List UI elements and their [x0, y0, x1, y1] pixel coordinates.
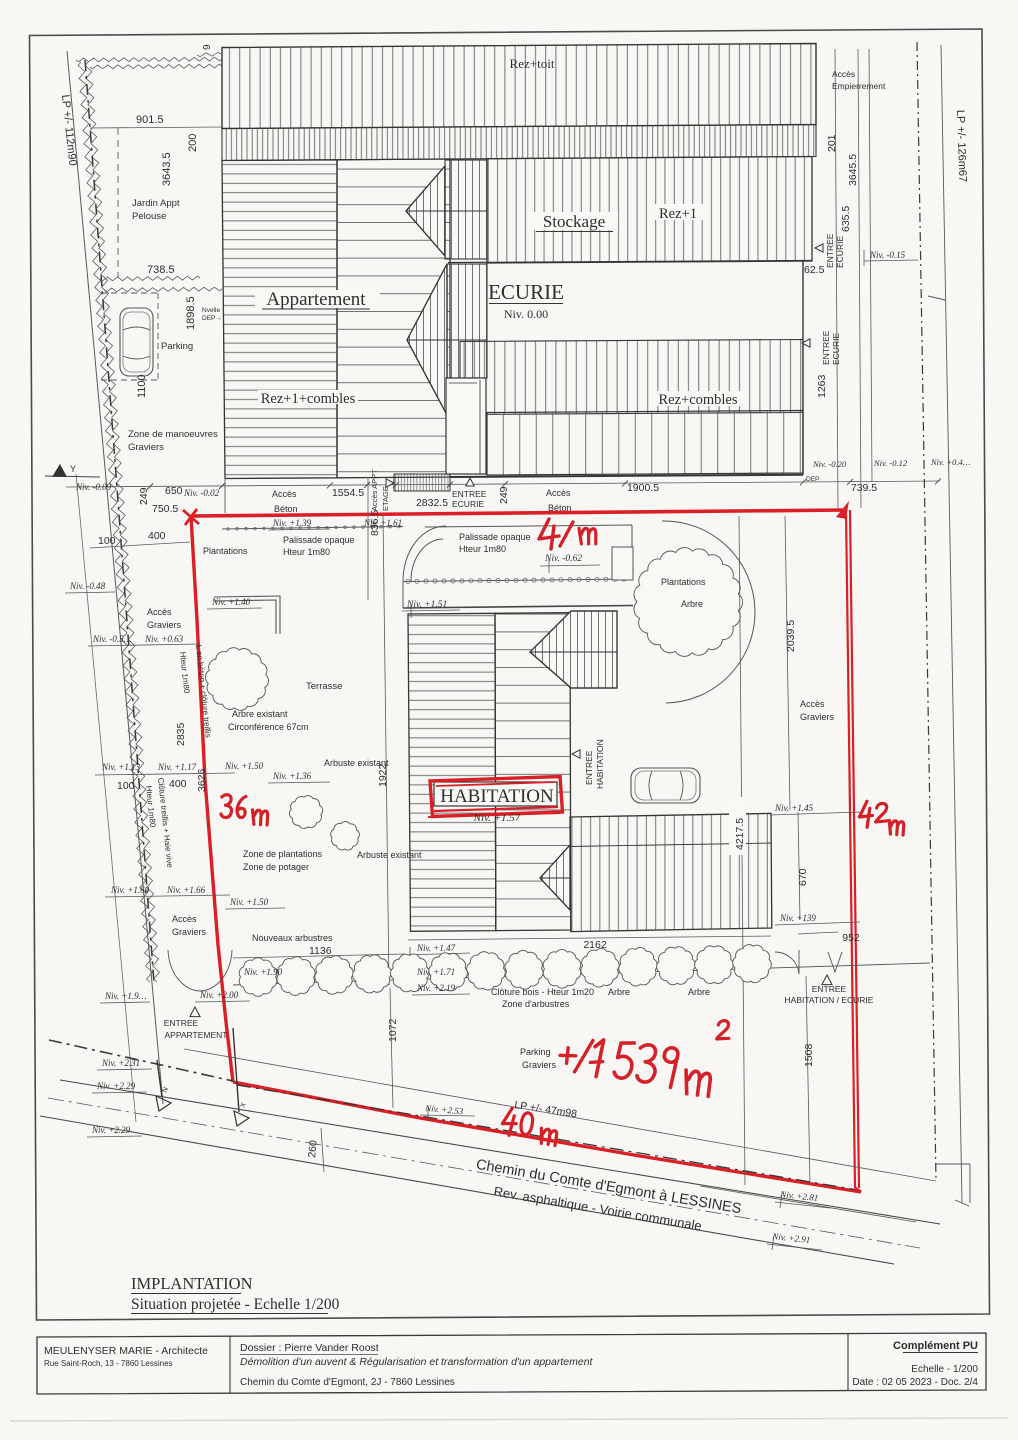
svg-text:DEP: DEP — [806, 476, 819, 483]
svg-text:Niv. +1.51: Niv. +1.51 — [406, 600, 447, 610]
svg-text:Stockage: Stockage — [543, 212, 605, 231]
svg-text:LP +/- 126m67: LP +/- 126m67 — [954, 110, 969, 183]
svg-text:APPARTEMENT: APPARTEMENT — [165, 1030, 228, 1040]
svg-text:3645.5: 3645.5 — [847, 154, 859, 186]
svg-text:Niv. +1.39: Niv. +1.39 — [272, 518, 312, 528]
svg-text:9: 9 — [202, 44, 213, 50]
svg-text:62.5: 62.5 — [804, 264, 825, 276]
svg-text:1263: 1263 — [816, 374, 828, 398]
svg-text:Niv. -0.48: Niv. -0.48 — [69, 581, 106, 591]
svg-text:Nvelle: Nvelle — [202, 307, 220, 314]
svg-text:Niv. -0.12: Niv. -0.12 — [873, 458, 908, 468]
svg-text:ENTREE: ENTREE — [825, 233, 835, 268]
svg-text:Niv. -0.20: Niv. -0.20 — [812, 459, 847, 469]
svg-text:Niv. -0.5…: Niv. -0.5… — [92, 634, 132, 644]
svg-text:Accès: Accès — [800, 699, 825, 709]
svg-text:Jardin Appt: Jardin Appt — [132, 198, 180, 209]
svg-text:Niv. 0.00: Niv. 0.00 — [504, 307, 548, 321]
svg-text:Zone d'arbustres: Zone d'arbustres — [502, 999, 570, 1009]
svg-text:Y: Y — [70, 464, 76, 474]
svg-text:Arbre existant: Arbre existant — [232, 709, 288, 719]
svg-text:260: 260 — [306, 1139, 320, 1158]
svg-text:HABITATION: HABITATION — [595, 739, 605, 789]
svg-text:400: 400 — [148, 530, 166, 542]
svg-text:Arbre: Arbre — [608, 987, 630, 997]
svg-text:1136: 1136 — [309, 945, 332, 957]
svg-text:Terrasse: Terrasse — [306, 681, 342, 692]
svg-text:836.5: 836.5 — [369, 510, 381, 536]
svg-text:Rez+1+combles: Rez+1+combles — [261, 391, 356, 407]
svg-text:650: 650 — [165, 485, 183, 497]
svg-text:2835: 2835 — [175, 722, 187, 746]
svg-text:1100: 1100 — [136, 374, 148, 398]
svg-text:ENTREE: ENTREE — [452, 489, 487, 499]
svg-text:Graviers: Graviers — [128, 442, 164, 453]
svg-text:200: 200 — [187, 134, 199, 152]
svg-text:Plantations: Plantations — [661, 577, 706, 587]
svg-text:Empierrement: Empierrement — [832, 81, 886, 91]
svg-text:Niv. +2.19: Niv. +2.19 — [416, 983, 456, 993]
svg-text:201: 201 — [826, 134, 838, 152]
svg-text:Chemin du Comte d'Egmont, 2J -: Chemin du Comte d'Egmont, 2J - 7860 Less… — [240, 1377, 455, 1388]
svg-text:Niv. -0.62: Niv. -0.62 — [544, 554, 582, 564]
svg-text:Accès: Accès — [172, 914, 197, 924]
svg-text:Plantations: Plantations — [203, 546, 248, 556]
svg-text:ENTREE: ENTREE — [164, 1018, 199, 1028]
svg-text:Circonférence 67cm: Circonférence 67cm — [228, 722, 309, 732]
svg-text:Béton: Béton — [274, 504, 298, 514]
svg-text:Rez+combles: Rez+combles — [658, 392, 737, 408]
svg-text:1508: 1508 — [803, 1043, 815, 1067]
svg-text:3626: 3626 — [196, 768, 208, 792]
svg-text:100: 100 — [98, 535, 116, 547]
svg-text:Niv. +1.13: Niv. +1.13 — [101, 762, 141, 772]
svg-text:ENTREE: ENTREE — [821, 330, 831, 365]
svg-text:Niv. +2.00: Niv. +2.00 — [199, 990, 239, 1000]
svg-text:Parking: Parking — [161, 341, 193, 352]
svg-text:ECURIE: ECURIE — [452, 499, 484, 509]
svg-text:Niv. -0.09: Niv. -0.09 — [75, 482, 112, 492]
svg-text:400: 400 — [169, 778, 187, 790]
svg-text:Zone de plantations: Zone de plantations — [243, 849, 323, 859]
svg-text:738.5: 738.5 — [147, 264, 175, 276]
svg-text:IMPLANTATION: IMPLANTATION — [131, 1274, 253, 1293]
svg-text:Accès: Accès — [272, 489, 297, 499]
svg-text:HABITATION / ECURIE: HABITATION / ECURIE — [785, 995, 874, 1005]
svg-text:Niv. +1.45: Niv. +1.45 — [774, 803, 814, 813]
svg-text:Niv. +1.36: Niv. +1.36 — [272, 771, 312, 781]
svg-text:Niv. +0.4…: Niv. +0.4… — [930, 457, 970, 467]
svg-text:100: 100 — [117, 780, 135, 792]
svg-text:DEP→: DEP→ — [202, 315, 222, 322]
svg-text:Zone de manoeuvres: Zone de manoeuvres — [128, 429, 218, 440]
svg-text:Niv. +2.29: Niv. +2.29 — [91, 1125, 131, 1135]
svg-text:2832.5: 2832.5 — [416, 497, 448, 509]
svg-text:Arbre: Arbre — [681, 599, 703, 609]
svg-text:Palissade opaque: Palissade opaque — [283, 535, 355, 545]
svg-text:Niv. +1.57: Niv. +1.57 — [473, 812, 521, 824]
svg-text:Complément PU: Complément PU — [893, 1340, 978, 1352]
svg-text:3643.5: 3643.5 — [161, 152, 173, 186]
svg-text:ECURIE: ECURIE — [835, 236, 845, 268]
svg-text:Clôture bois - Hteur 1m20: Clôture bois - Hteur 1m20 — [491, 987, 594, 997]
svg-text:1922: 1922 — [377, 763, 389, 787]
svg-text:249: 249 — [498, 486, 510, 504]
svg-text:Nouveaux arbustres: Nouveaux arbustres — [252, 933, 333, 943]
svg-text:Parking: Parking — [520, 1047, 551, 1057]
svg-text:Rue Saint-Roch, 13 - 7860 Less: Rue Saint-Roch, 13 - 7860 Lessines — [44, 1359, 173, 1368]
svg-text:Rez+1: Rez+1 — [659, 206, 697, 222]
svg-text:Niv. +2.31: Niv. +2.31 — [101, 1058, 140, 1068]
svg-text:739.5: 739.5 — [851, 482, 877, 494]
svg-text:952: 952 — [842, 932, 860, 944]
svg-text:Graviers: Graviers — [522, 1060, 557, 1070]
svg-text:Accès: Accès — [147, 607, 172, 617]
svg-text:Dossier : Pierre Vander Roost: Dossier : Pierre Vander Roost — [240, 1342, 379, 1354]
svg-text:Niv. +1.50: Niv. +1.50 — [224, 761, 264, 771]
svg-text:ECURIE: ECURIE — [831, 333, 841, 365]
svg-text:ENTREE: ENTREE — [812, 984, 847, 994]
svg-text:Hteur 1m80: Hteur 1m80 — [459, 544, 506, 554]
svg-text:Zone de potager: Zone de potager — [243, 862, 309, 872]
svg-text:Pelouse: Pelouse — [132, 211, 166, 222]
svg-text:1554.5: 1554.5 — [332, 487, 364, 499]
svg-text:Hteur 1m80: Hteur 1m80 — [283, 547, 330, 557]
svg-text:Appartement: Appartement — [266, 289, 366, 310]
svg-text:1072: 1072 — [387, 1018, 399, 1042]
svg-text:Palissade opaque: Palissade opaque — [459, 532, 531, 542]
svg-text:Niv. +1.60: Niv. +1.60 — [110, 885, 150, 895]
svg-text:Echelle - 1/200: Echelle - 1/200 — [911, 1364, 978, 1375]
svg-text:Niv. +1.47: Niv. +1.47 — [416, 943, 456, 953]
svg-text:Accès: Accès — [832, 69, 855, 79]
svg-text:Accès: Accès — [546, 488, 571, 498]
svg-text:901.5: 901.5 — [136, 114, 164, 126]
svg-text:ECURIE: ECURIE — [488, 280, 564, 304]
svg-text:HABITATION: HABITATION — [440, 786, 554, 807]
svg-text:ETAGE: ETAGE — [381, 486, 390, 511]
svg-text:Niv. +1.40: Niv. +1.40 — [211, 597, 251, 607]
svg-text:1900.5: 1900.5 — [627, 482, 659, 494]
svg-text:Niv. +1.90: Niv. +1.90 — [243, 967, 283, 977]
svg-text:Niv. +139: Niv. +139 — [779, 913, 816, 923]
svg-text:MEULENYSER MARIE - Architecte: MEULENYSER MARIE - Architecte — [44, 1345, 208, 1357]
svg-text:Niv. +0.63: Niv. +0.63 — [144, 634, 184, 644]
svg-text:Niv. +1.9…: Niv. +1.9… — [104, 991, 147, 1001]
svg-text:750.5: 750.5 — [152, 503, 178, 515]
svg-text:ENTREE: ENTREE — [584, 750, 594, 785]
svg-text:635.5: 635.5 — [840, 206, 852, 232]
svg-text:1898.5: 1898.5 — [185, 296, 197, 330]
svg-text:Rez+toit: Rez+toit — [510, 56, 555, 71]
svg-text:Situation projetée - Echelle 1: Situation projetée - Echelle 1/200 — [131, 1296, 340, 1313]
svg-text:2039.5: 2039.5 — [785, 620, 797, 652]
svg-text:Niv. +1.50: Niv. +1.50 — [229, 897, 269, 907]
svg-text:4217.5: 4217.5 — [734, 818, 746, 850]
svg-text:Niv. +1.66: Niv. +1.66 — [166, 885, 206, 895]
svg-text:Graviers: Graviers — [147, 620, 182, 630]
svg-text:Niv. +1.17: Niv. +1.17 — [157, 762, 197, 772]
svg-text:Arbre: Arbre — [688, 987, 710, 997]
svg-text:249: 249 — [138, 487, 150, 505]
svg-text:Niv. +1.71: Niv. +1.71 — [416, 967, 455, 977]
svg-text:Graviers: Graviers — [172, 927, 207, 937]
svg-text:670: 670 — [797, 868, 809, 886]
svg-text:Démolition d'un auvent & Régu: Démolition d'un auvent & Régularisation … — [240, 1356, 594, 1368]
svg-text:Niv. -0.02: Niv. -0.02 — [183, 488, 220, 498]
svg-text:Graviers: Graviers — [800, 712, 835, 722]
svg-text:Niv. -0.15: Niv. -0.15 — [869, 250, 906, 260]
svg-text:Date : 02 05 2023 - Doc. 2/4: Date : 02 05 2023 - Doc. 2/4 — [852, 1377, 978, 1388]
